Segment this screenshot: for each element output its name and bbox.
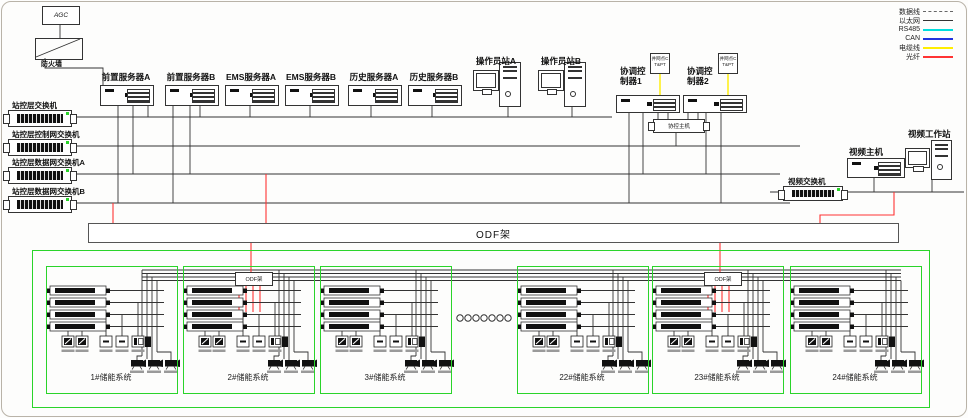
odf-rack: ODF架 [88,223,899,243]
legend-item: 光纤 [884,52,953,61]
server-icon [100,85,154,106]
video-host-icon [847,158,905,178]
legend-item: RS485 [884,25,953,34]
agc-box: AGC [42,6,80,25]
network-architecture-diagram: AGC 防火墙 前置服务器A 前置服务器B EMS服务器A EMS服务器B 历史… [0,0,968,418]
tower-icon [564,62,586,107]
server-icon [408,85,462,106]
monitor-icon [905,148,930,168]
station-switch-icon [8,139,72,156]
server-label: 历史服务器A [342,71,406,83]
station-switch-label: 站控层数据网交换机A [12,157,85,168]
operator-station-label: 操作员站A [466,55,526,67]
station-switch-label: 站控层控制网交换机 [12,129,80,140]
storage-block-label: 23#储能系统 [652,372,782,383]
grid-ct-pt-box: 并网点CT&PT [650,53,670,74]
legend: 数据线 以太网 RS485 CAN 电缆线 光纤 [884,7,953,61]
station-switch-icon [8,196,72,213]
monitor-icon [538,70,564,91]
tower-icon [499,62,521,107]
block-odf-box: ODF架 [704,272,742,286]
server-icon [165,85,219,106]
video-host-label: 视频主机 [849,146,883,158]
storage-block-label: 3#储能系统 [320,372,450,383]
controller-label: 协调控制器1 [620,66,650,86]
ethernet-line-swatch [923,20,953,21]
station-switch-label: 站控层交换机 [12,100,57,111]
server-icon [348,85,402,106]
server-label: 前置服务器A [94,71,158,83]
firewall-label: 防火墙 [41,59,62,69]
storage-block-label: 1#储能系统 [46,372,176,383]
monitor-icon [473,70,499,91]
video-switch-label: 视频交换机 [788,176,826,187]
server-label: 历史服务器B [402,71,466,83]
storage-block-label: 24#储能系统 [790,372,920,383]
server-label: EMS服务器A [219,71,283,83]
server-label: 前置服务器B [159,71,223,83]
station-switch-label: 站控层数据网交换机B [12,186,85,197]
controller-icon [683,95,747,113]
server-label: EMS服务器B [279,71,343,83]
controller-icon [616,95,680,113]
server-icon [285,85,339,106]
video-workstation-label: 视频工作站 [908,128,951,140]
firewall-box [35,38,83,60]
storage-block-label: 2#储能系统 [183,372,313,383]
grid-ct-pt-box: 并网点CT&PT [718,53,738,74]
legend-item: 以太网 [884,16,953,25]
controller-label: 协调控制器2 [687,66,717,86]
cable-line-swatch [923,47,953,49]
rs485-line-swatch [923,29,953,31]
station-switch-icon [8,167,72,184]
server-icon [225,85,279,106]
video-switch-icon [783,186,843,201]
coord-host-box: 协控主机 [653,119,705,133]
station-switch-icon [8,110,72,127]
block-odf-box: ODF架 [235,272,273,286]
fiber-line-swatch [923,56,953,58]
can-line-swatch [923,38,953,40]
storage-block-label: 22#储能系统 [517,372,647,383]
tower-icon [931,140,952,180]
operator-station-label: 操作员站B [531,55,591,67]
dashed-line-swatch [923,11,953,12]
